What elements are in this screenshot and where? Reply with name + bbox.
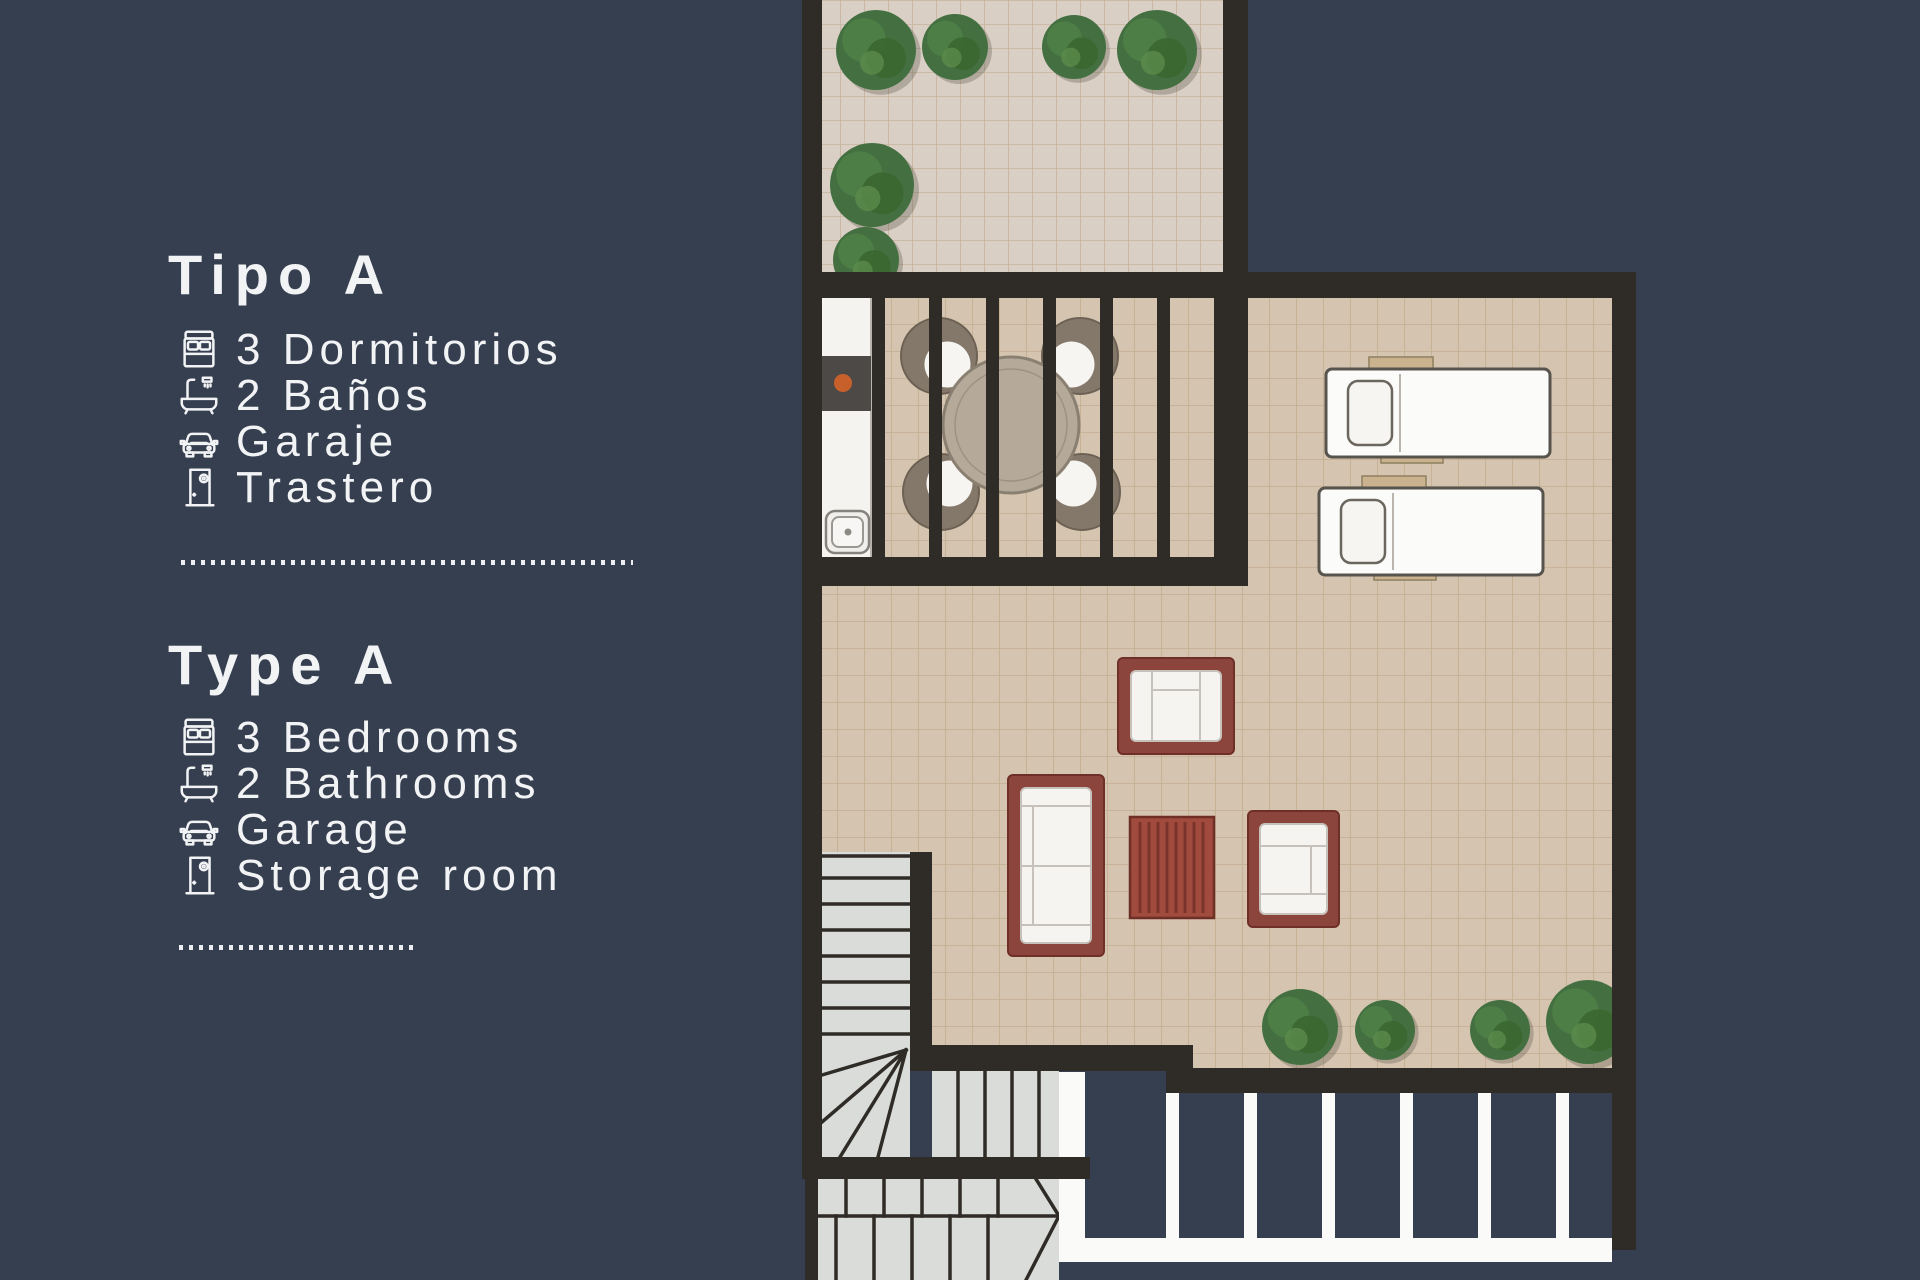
section-title-es: Tipo A [168, 242, 393, 307]
feature-storage-en: Storage room [176, 853, 563, 899]
sun-lounger [1326, 357, 1550, 463]
feature-label: Garaje [222, 417, 398, 467]
sun-lounger [1319, 476, 1543, 580]
wall-left-outer [802, 0, 822, 1179]
feature-garage-en: Garage [176, 807, 563, 853]
feature-bathrooms-es: 2 Baños [176, 373, 563, 419]
door-icon [176, 853, 222, 899]
wall-terrace-bottom-left [910, 1045, 1193, 1071]
dining-table [943, 357, 1079, 493]
kitchen-counter [818, 298, 871, 557]
burner-dot [834, 374, 852, 392]
feature-bathrooms-en: 2 Bathrooms [176, 761, 563, 807]
stair-bottom-flight [818, 1179, 1059, 1280]
wall-stair-mid [802, 1157, 1090, 1179]
bathtub-icon [176, 373, 222, 419]
feature-label: Trastero [222, 463, 438, 513]
car-icon [176, 419, 222, 465]
feature-label: 2 Bathrooms [222, 759, 540, 809]
dotted-separator [181, 560, 633, 565]
bed-icon [176, 327, 222, 373]
feature-storage-es: Trastero [176, 465, 563, 511]
wall-top-main [802, 272, 1636, 298]
coffee-table [1130, 817, 1214, 918]
flyer-canvas: Tipo A 3 Dormitorios [0, 0, 1920, 1280]
feature-bedrooms-es: 3 Dormitorios [176, 327, 563, 373]
wall-terrace-bottom-right [1166, 1068, 1632, 1093]
wall-stair-bottom-left [805, 1179, 818, 1280]
feature-list-es: 3 Dormitorios 2 Baños [176, 327, 563, 511]
feature-list-en: 3 Bedrooms 2 Bathrooms [176, 715, 563, 899]
car-icon [176, 807, 222, 853]
armchair-right [1248, 811, 1339, 927]
feature-label: 2 Baños [222, 371, 432, 421]
feature-label: 3 Bedrooms [222, 713, 523, 763]
wall-pergola-bottom [802, 557, 1248, 586]
armchair-top [1118, 658, 1234, 754]
bathtub-icon [176, 761, 222, 807]
wall-right-outer [1612, 272, 1636, 1250]
door-icon [176, 465, 222, 511]
garage-parking [1059, 1072, 1612, 1262]
bed-icon [176, 715, 222, 761]
feature-bedrooms-en: 3 Bedrooms [176, 715, 563, 761]
feature-label: Storage room [222, 851, 563, 901]
feature-garage-es: Garaje [176, 419, 563, 465]
sofa [1008, 775, 1104, 956]
feature-label: 3 Dormitorios [222, 325, 563, 375]
info-panel: Tipo A 3 Dormitorios [0, 0, 700, 1280]
section-title-en: Type A [168, 632, 402, 697]
sink [826, 511, 869, 553]
wall-stair-right [910, 852, 932, 1071]
dotted-separator [179, 945, 415, 950]
feature-label: Garage [222, 805, 413, 855]
